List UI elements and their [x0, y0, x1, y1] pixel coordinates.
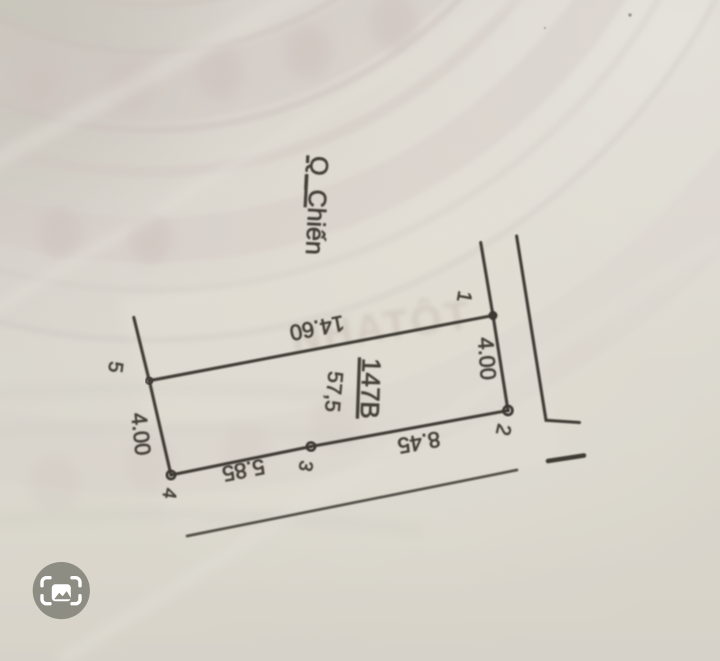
svg-text:4.00: 4.00 — [473, 336, 501, 380]
svg-text:Q_Chiến: Q_Chiến — [300, 155, 333, 255]
svg-text:147B: 147B — [355, 358, 387, 420]
svg-text:4.00: 4.00 — [126, 411, 155, 456]
svg-text:57,5: 57,5 — [320, 370, 346, 413]
